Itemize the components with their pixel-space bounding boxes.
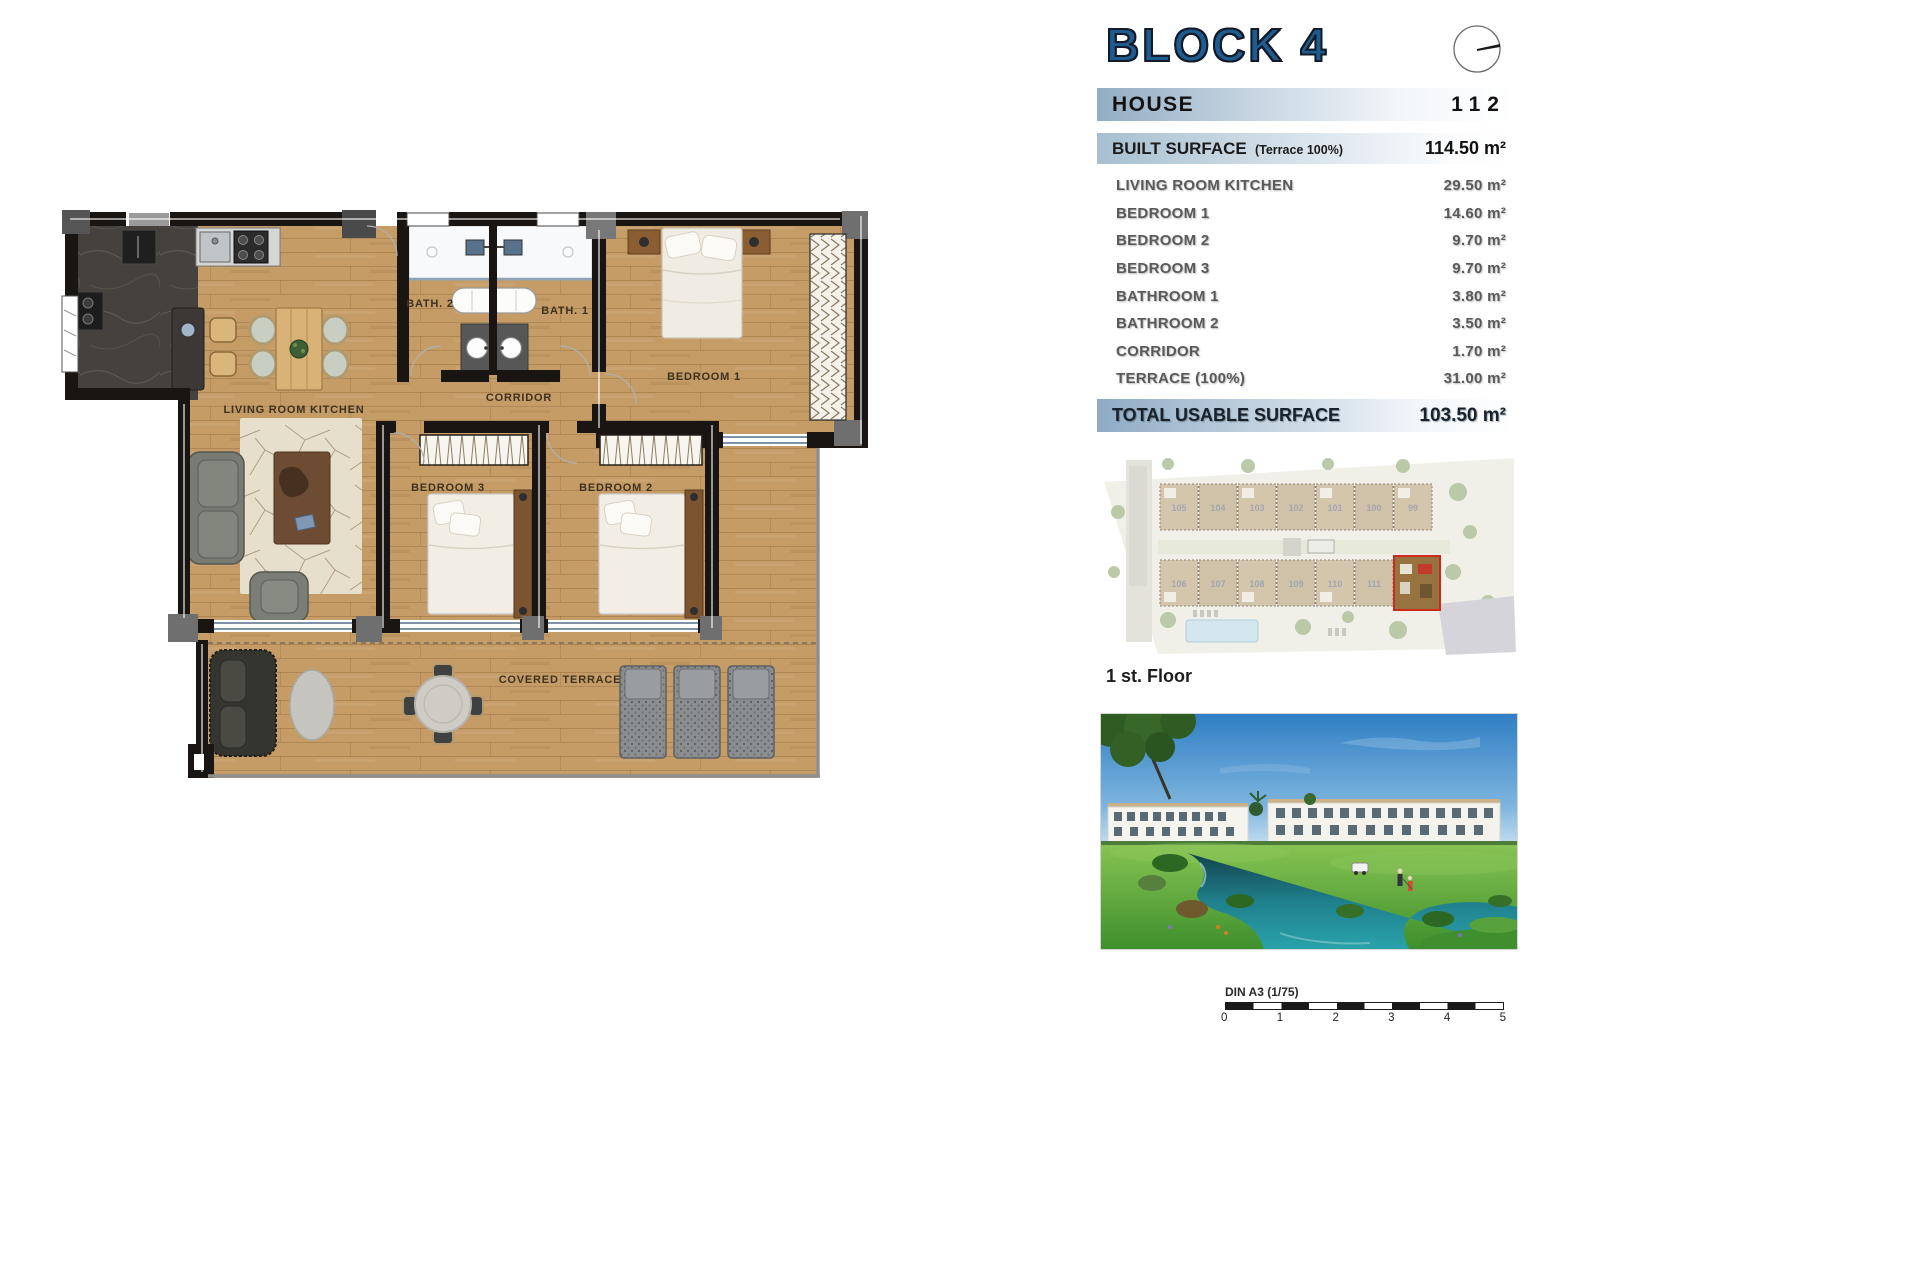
row-value: 3.50 m² [1452,315,1506,332]
row-label: BEDROOM 3 [1116,260,1210,277]
floor-caption: 1 st. Floor [1106,666,1192,687]
row-value: 9.70 m² [1452,232,1506,249]
room-label-living: LIVING ROOM KITCHEN [223,404,364,416]
unit-number: 101 [1327,503,1342,513]
unit-number: 102 [1288,503,1303,513]
unit-number: 111 [1367,579,1381,589]
row-label: LIVING ROOM KITCHEN [1116,177,1293,194]
total-surface-label: TOTAL USABLE SURFACE [1112,405,1340,426]
built-surface-note: (Terrace 100%) [1255,143,1343,157]
built-surface-bar: BUILT SURFACE (Terrace 100%) 114.50 m² [1097,133,1514,164]
built-surface-value: 114.50 m² [1425,138,1506,159]
built-surface-label: BUILT SURFACE [1112,139,1247,158]
house-number: 112 [1451,93,1506,117]
room-label-bedroom1: BEDROOM 1 [667,371,741,383]
scale-tick: 4 [1444,1012,1450,1024]
row-value: 3.80 m² [1452,288,1506,305]
row-value: 1.70 m² [1452,343,1506,360]
bedroom3-furniture [428,490,532,618]
site-plan: 105 104 103 102 101 100 99 106 107 108 1… [1098,452,1520,660]
room-label-corridor: CORRIDOR [486,392,552,404]
floorplan-sheet: { "panel": { "block_title": "BLOCK 4", "… [0,0,1920,1280]
unit-number: 110 [1328,579,1343,589]
scale-bar [1225,1002,1504,1010]
bedroom2-furniture [599,490,703,618]
house-bar: HOUSE 112 [1097,88,1514,121]
unit-number: 108 [1249,579,1264,589]
scale-tick: 1 [1277,1012,1283,1024]
table-row: BEDROOM 1 14.60 m² [1097,200,1514,228]
row-label: CORRIDOR [1116,343,1200,360]
table-row: BEDROOM 2 9.70 m² [1097,227,1514,255]
dining-set [250,308,348,390]
bedroom1-wardrobe [810,234,846,420]
row-value: 29.50 m² [1444,177,1506,194]
table-row: LIVING ROOM KITCHEN 29.50 m² [1097,172,1514,200]
block-title: BLOCK 4 [1106,18,1329,72]
scale-tick: 3 [1388,1012,1394,1024]
total-surface-bar: TOTAL USABLE SURFACE 103.50 m² [1097,399,1514,432]
unit-number: 106 [1171,579,1186,589]
floor-plan: LIVING ROOM KITCHEN BATH. 2 BATH. 1 CORR… [0,0,1000,820]
scale-tick: 2 [1332,1012,1338,1024]
row-label: BEDROOM 1 [1116,205,1210,222]
row-value: 9.70 m² [1452,260,1506,277]
unit-number: 109 [1288,579,1303,589]
room-label-bath1: BATH. 1 [541,305,589,317]
row-label: BEDROOM 2 [1116,232,1210,249]
row-label: TERRACE (100%) [1116,370,1245,387]
scale-tick: 5 [1500,1012,1506,1024]
room-label-bedroom3: BEDROOM 3 [411,482,485,494]
row-label: BATHROOM 1 [1116,288,1219,305]
table-row: BATHROOM 1 3.80 m² [1097,282,1514,310]
north-indicator-icon [1450,22,1504,76]
bedroom2-closet [600,435,702,465]
room-label-bath2: BATH. 2 [406,298,454,310]
render-photo [1100,713,1518,950]
scale-ticks: 0 1 2 3 4 5 [1221,1012,1506,1024]
room-label-terrace: COVERED TERRACE [499,674,622,686]
house-label: HOUSE [1112,93,1194,117]
row-value: 31.00 m² [1444,370,1506,387]
unit-number: 107 [1210,579,1225,589]
bedroom3-closet [420,435,528,465]
table-row: CORRIDOR 1.70 m² [1097,338,1514,366]
unit-number: 103 [1249,503,1264,513]
unit-number: 100 [1366,503,1381,513]
total-surface-value: 103.50 m² [1419,405,1506,427]
room-label-bedroom2: BEDROOM 2 [579,482,653,494]
highlighted-unit [1394,556,1440,610]
unit-number: 99 [1408,503,1418,513]
scale-tick: 0 [1221,1012,1227,1024]
table-row: BEDROOM 3 9.70 m² [1097,255,1514,283]
unit-number: 105 [1171,503,1186,513]
row-label: BATHROOM 2 [1116,315,1219,332]
unit-number: 104 [1210,503,1225,513]
scale-label: DIN A3 (1/75) [1225,985,1299,999]
row-value: 14.60 m² [1444,205,1506,222]
surface-table: LIVING ROOM KITCHEN 29.50 m² BEDROOM 1 1… [1097,172,1514,393]
table-row: BATHROOM 2 3.50 m² [1097,310,1514,338]
table-row: TERRACE (100%) 31.00 m² [1097,365,1514,393]
